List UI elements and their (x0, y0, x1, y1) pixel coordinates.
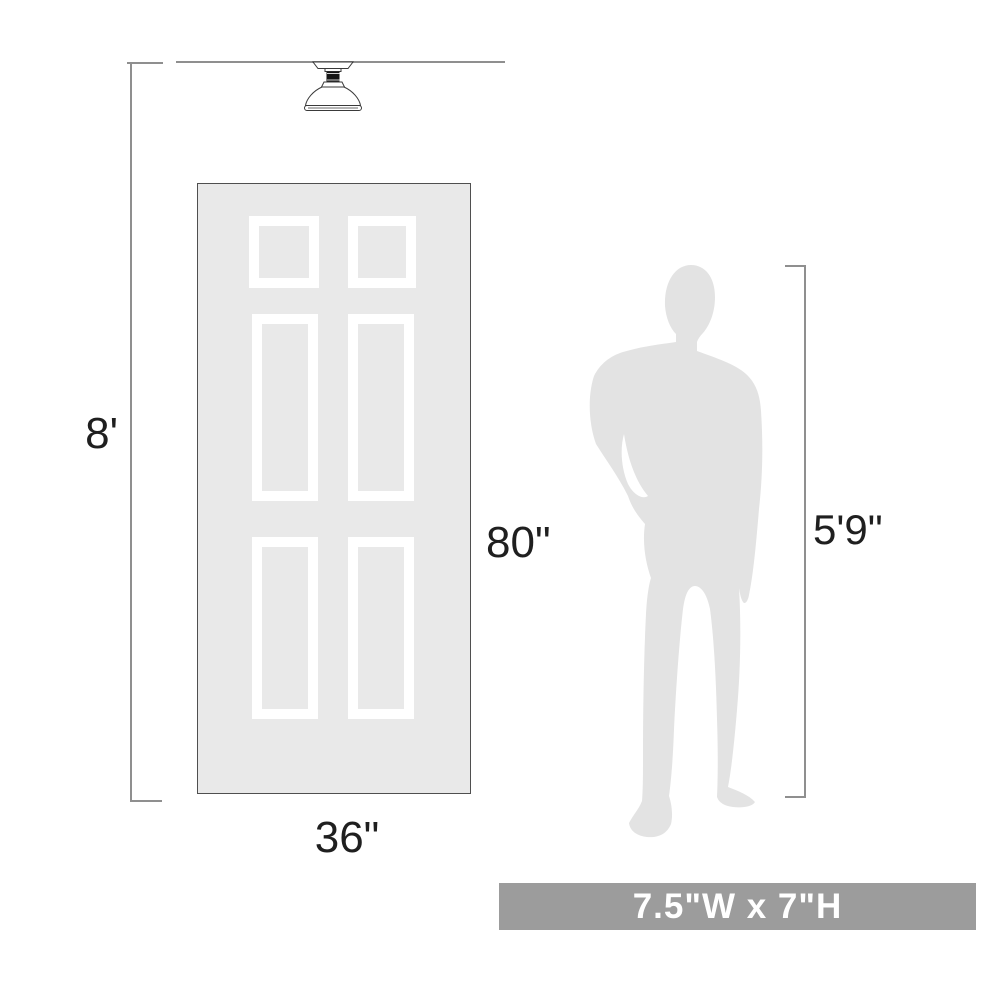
ceiling-light-icon (303, 60, 363, 114)
dimension-tick-bottom (130, 800, 162, 802)
size-comparison-diagram: 8' 80" 36" 5'9" 7.5"W x 7"H (0, 0, 1000, 1000)
door-panel (252, 314, 318, 501)
dimension-tick-top (127, 62, 163, 64)
door-panel (249, 216, 319, 288)
door-width-label: 36" (262, 816, 432, 860)
product-dimensions-banner: 7.5"W x 7"H (499, 883, 976, 930)
dimension-tick-top (785, 265, 806, 267)
door-panel (348, 314, 414, 501)
ceiling-height-dimension-line (130, 62, 132, 802)
door-illustration (197, 183, 471, 794)
door-panel (252, 537, 318, 719)
door-panel (348, 216, 416, 288)
person-height-label: 5'9" (813, 509, 883, 551)
door-height-label: 80" (486, 521, 551, 565)
person-height-dimension-line (804, 265, 806, 798)
door-panel (348, 537, 414, 719)
dimension-tick-bottom (785, 796, 806, 798)
product-dimensions-label: 7.5"W x 7"H (633, 887, 843, 927)
ceiling-height-label: 8' (52, 412, 118, 456)
person-silhouette-icon (588, 264, 772, 838)
